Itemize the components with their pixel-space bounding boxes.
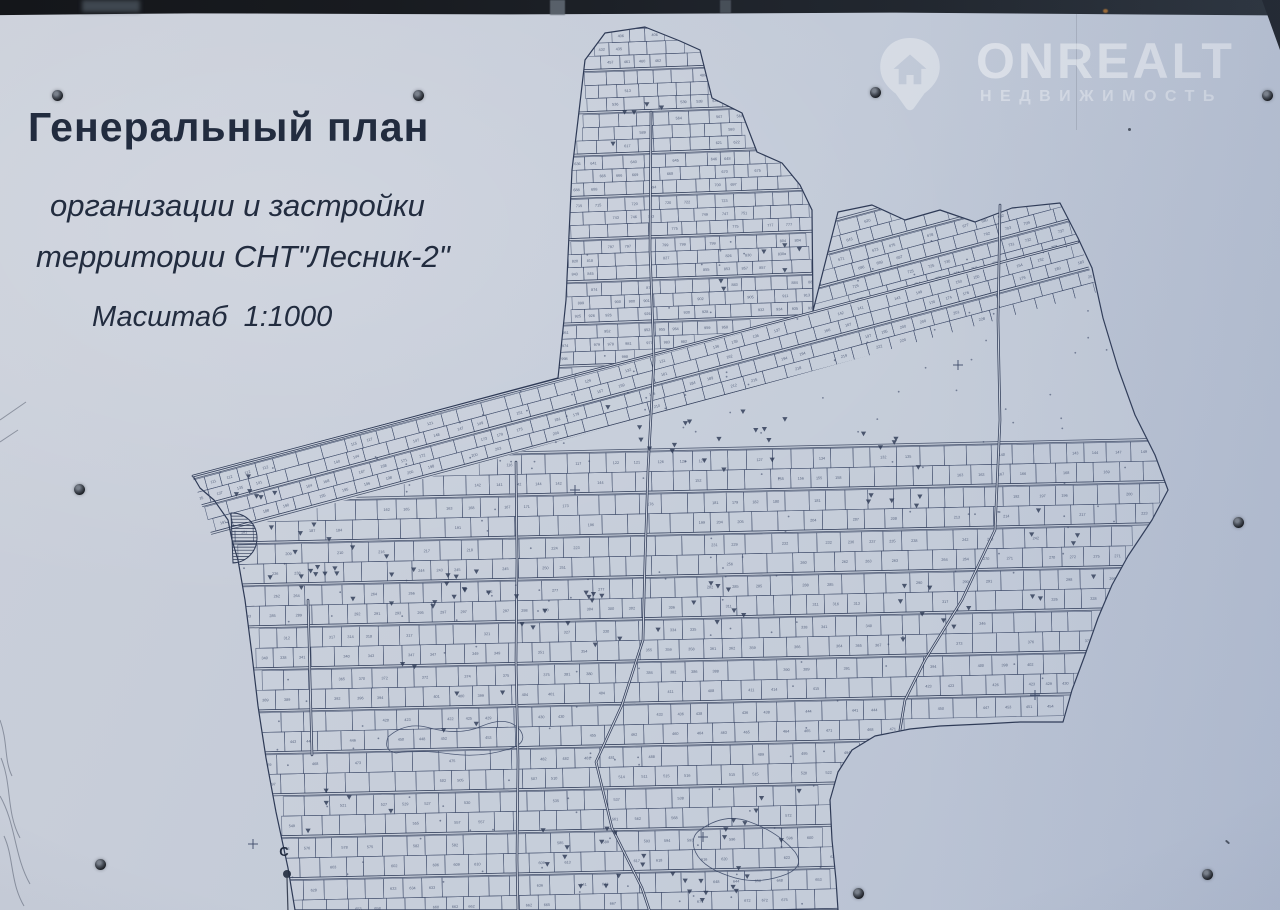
svg-text:349: 349 — [472, 652, 478, 656]
svg-text:270: 270 — [1049, 556, 1055, 560]
svg-text:271: 271 — [1007, 556, 1013, 560]
svg-text:152: 152 — [695, 479, 701, 483]
svg-text:645: 645 — [672, 159, 678, 163]
svg-text:235: 235 — [889, 539, 895, 543]
signboard-photo: Генеральный план организации и застройки… — [0, 0, 1280, 910]
svg-text:316: 316 — [833, 602, 839, 606]
svg-text:311: 311 — [812, 603, 818, 607]
svg-text:720: 720 — [631, 202, 637, 206]
svg-text:452: 452 — [441, 737, 447, 741]
svg-text:557: 557 — [478, 820, 484, 824]
svg-text:116: 116 — [506, 463, 512, 467]
svg-text:214: 214 — [1003, 514, 1009, 518]
svg-text:406: 406 — [618, 34, 624, 38]
svg-text:979: 979 — [594, 343, 600, 347]
svg-text:505: 505 — [457, 778, 463, 782]
svg-text:555: 555 — [413, 822, 419, 826]
svg-text:341: 341 — [299, 655, 305, 659]
svg-text:260: 260 — [800, 561, 806, 565]
svg-text:291: 291 — [986, 579, 992, 583]
svg-text:507: 507 — [531, 777, 537, 781]
svg-text:468: 468 — [312, 762, 318, 766]
svg-text:900: 900 — [629, 299, 635, 303]
svg-text:156: 156 — [798, 477, 804, 481]
svg-text:662: 662 — [526, 903, 532, 907]
svg-text:450: 450 — [398, 738, 404, 742]
svg-text:411: 411 — [667, 690, 673, 694]
svg-text:515: 515 — [729, 773, 735, 777]
svg-text:667: 667 — [610, 902, 616, 906]
svg-text:843: 843 — [571, 272, 577, 276]
svg-text:432: 432 — [599, 48, 605, 52]
svg-text:199: 199 — [699, 521, 705, 525]
svg-text:641: 641 — [590, 161, 596, 165]
svg-text:675: 675 — [754, 169, 760, 173]
svg-text:482: 482 — [540, 757, 546, 761]
svg-text:845: 845 — [587, 272, 593, 276]
svg-text:132: 132 — [880, 455, 886, 459]
svg-text:318: 318 — [366, 635, 372, 639]
svg-text:515: 515 — [752, 772, 758, 776]
svg-text:482: 482 — [562, 757, 568, 761]
svg-text:334: 334 — [670, 628, 676, 632]
svg-text:122: 122 — [613, 461, 619, 465]
svg-text:804: 804 — [795, 239, 801, 243]
svg-text:926: 926 — [605, 313, 611, 317]
screw-head — [74, 484, 85, 495]
svg-text:610: 610 — [474, 862, 480, 866]
svg-text:830: 830 — [778, 252, 784, 256]
svg-text:366: 366 — [794, 645, 800, 649]
svg-text:402: 402 — [1027, 663, 1033, 667]
svg-text:454: 454 — [1047, 705, 1053, 709]
svg-text:952: 952 — [604, 329, 610, 333]
svg-text:799: 799 — [662, 243, 668, 247]
svg-text:295: 295 — [417, 611, 423, 615]
svg-text:925: 925 — [575, 314, 581, 318]
svg-text:340: 340 — [261, 656, 267, 660]
svg-text:149: 149 — [1141, 450, 1147, 454]
svg-text:436: 436 — [678, 712, 684, 716]
svg-text:401: 401 — [548, 692, 554, 696]
svg-text:582: 582 — [413, 844, 419, 848]
svg-text:700: 700 — [714, 183, 720, 187]
svg-text:251: 251 — [559, 566, 565, 570]
svg-text:648: 648 — [713, 880, 719, 884]
svg-text:365: 365 — [856, 644, 862, 648]
svg-text:423: 423 — [948, 684, 954, 688]
svg-text:926: 926 — [589, 314, 595, 318]
svg-text:982: 982 — [681, 340, 687, 344]
svg-text:298: 298 — [1066, 578, 1072, 582]
svg-text:935: 935 — [792, 307, 798, 311]
svg-text:453: 453 — [1005, 705, 1011, 709]
svg-text:998: 998 — [561, 357, 567, 361]
svg-text:256: 256 — [727, 562, 733, 566]
svg-text:636: 636 — [574, 162, 580, 166]
svg-text:317: 317 — [329, 635, 335, 639]
svg-text:600: 600 — [807, 836, 813, 840]
svg-text:613: 613 — [564, 860, 570, 864]
svg-text:384: 384 — [646, 671, 652, 675]
svg-text:142: 142 — [555, 482, 561, 486]
svg-text:666: 666 — [616, 174, 622, 178]
svg-text:155: 155 — [816, 476, 822, 480]
svg-text:204: 204 — [810, 518, 816, 522]
svg-text:952: 952 — [644, 328, 650, 332]
svg-text:216: 216 — [378, 550, 384, 554]
svg-text:978: 978 — [608, 342, 614, 346]
svg-text:977: 977 — [646, 341, 652, 345]
svg-text:981: 981 — [625, 342, 631, 346]
svg-text:538: 538 — [696, 99, 702, 103]
svg-text:335: 335 — [690, 628, 696, 632]
svg-text:181: 181 — [241, 530, 247, 534]
svg-text:372: 372 — [381, 676, 387, 680]
svg-text:460: 460 — [672, 732, 678, 736]
svg-text:340: 340 — [343, 655, 349, 659]
svg-text:561: 561 — [612, 817, 618, 821]
svg-text:461: 461 — [624, 60, 630, 64]
svg-text:208: 208 — [891, 517, 897, 521]
svg-text:888: 888 — [808, 280, 814, 284]
svg-text:346: 346 — [979, 622, 985, 626]
svg-text:380: 380 — [586, 672, 592, 676]
svg-text:292: 292 — [354, 612, 360, 616]
svg-text:928: 928 — [702, 310, 708, 314]
svg-text:593: 593 — [687, 838, 693, 842]
svg-text:515: 515 — [663, 774, 669, 778]
svg-text:443: 443 — [290, 740, 296, 744]
svg-text:471: 471 — [826, 729, 832, 733]
svg-text:389: 389 — [262, 698, 268, 702]
svg-text:394: 394 — [377, 696, 383, 700]
svg-text:289: 289 — [296, 613, 302, 617]
svg-text:723: 723 — [721, 199, 727, 203]
svg-text:338: 338 — [801, 625, 807, 629]
svg-text:430: 430 — [558, 715, 564, 719]
svg-text:535: 535 — [553, 799, 559, 803]
svg-text:648: 648 — [777, 879, 783, 883]
svg-text:291: 291 — [374, 612, 380, 616]
svg-text:171: 171 — [524, 505, 530, 509]
svg-text:602: 602 — [391, 864, 397, 868]
svg-text:464: 464 — [697, 731, 703, 735]
svg-text:351: 351 — [538, 650, 544, 654]
svg-text:382: 382 — [670, 670, 676, 674]
svg-text:347: 347 — [430, 653, 436, 657]
svg-text:285: 285 — [827, 583, 833, 587]
svg-text:958: 958 — [722, 325, 728, 329]
svg-text:262: 262 — [842, 560, 848, 564]
svg-text:633: 633 — [390, 887, 396, 891]
svg-text:527: 527 — [424, 802, 430, 806]
svg-text:282: 282 — [707, 585, 713, 589]
svg-text:373: 373 — [956, 642, 962, 646]
svg-text:232: 232 — [825, 541, 831, 545]
svg-text:223: 223 — [573, 546, 579, 550]
svg-text:932: 932 — [758, 308, 764, 312]
svg-text:338: 338 — [280, 656, 286, 660]
svg-text:636: 636 — [537, 884, 543, 888]
svg-text:665: 665 — [599, 174, 605, 178]
svg-text:374: 374 — [464, 675, 470, 679]
svg-text:264: 264 — [941, 558, 947, 562]
svg-text:446: 446 — [350, 739, 356, 743]
svg-text:617: 617 — [634, 859, 640, 863]
svg-text:179: 179 — [732, 501, 738, 505]
svg-text:465: 465 — [804, 729, 810, 733]
svg-text:423: 423 — [925, 684, 931, 688]
svg-text:818: 818 — [587, 259, 593, 263]
svg-text:621: 621 — [716, 141, 722, 145]
svg-text:197: 197 — [1039, 494, 1045, 498]
svg-text:264: 264 — [963, 557, 969, 561]
svg-text:722: 722 — [684, 200, 690, 204]
svg-text:250: 250 — [542, 566, 548, 570]
svg-text:857: 857 — [742, 266, 748, 270]
svg-text:381: 381 — [564, 673, 570, 677]
svg-text:205: 205 — [737, 520, 743, 524]
svg-text:913: 913 — [804, 293, 810, 297]
svg-text:181: 181 — [712, 501, 718, 505]
svg-text:905: 905 — [747, 295, 753, 299]
svg-text:901: 901 — [643, 299, 649, 303]
svg-text:557: 557 — [454, 821, 460, 825]
svg-text:596: 596 — [729, 837, 735, 841]
svg-text:244: 244 — [418, 569, 424, 573]
svg-text:306: 306 — [669, 606, 675, 610]
svg-text:236: 236 — [272, 572, 278, 576]
svg-text:330: 330 — [603, 630, 609, 634]
svg-text:435: 435 — [616, 47, 622, 51]
svg-text:218: 218 — [467, 548, 473, 552]
svg-text:468: 468 — [867, 728, 873, 732]
svg-text:593: 593 — [728, 127, 734, 131]
svg-text:464: 464 — [783, 730, 789, 734]
svg-text:400: 400 — [458, 694, 464, 698]
svg-text:297: 297 — [460, 610, 466, 614]
svg-text:720: 720 — [665, 201, 671, 205]
svg-text:448: 448 — [419, 737, 425, 741]
svg-text:283: 283 — [245, 614, 251, 618]
svg-text:340: 340 — [866, 624, 872, 628]
svg-text:204: 204 — [716, 520, 722, 524]
svg-text:564: 564 — [676, 116, 682, 120]
svg-text:288: 288 — [802, 583, 808, 587]
svg-text:144: 144 — [535, 482, 541, 486]
svg-text:354: 354 — [581, 650, 587, 654]
svg-text:117: 117 — [575, 462, 581, 466]
svg-text:609: 609 — [538, 861, 544, 865]
svg-text:622: 622 — [830, 855, 836, 859]
svg-text:237: 237 — [869, 540, 875, 544]
svg-text:277: 277 — [552, 589, 558, 593]
svg-text:471: 471 — [890, 727, 896, 731]
svg-text:634: 634 — [409, 886, 415, 890]
svg-text:775: 775 — [732, 225, 738, 229]
svg-text:675: 675 — [781, 898, 787, 902]
svg-text:511: 511 — [641, 775, 647, 779]
svg-text:444: 444 — [871, 708, 877, 712]
svg-text:650: 650 — [755, 879, 761, 883]
svg-text:596: 596 — [786, 836, 792, 840]
svg-text:173: 173 — [562, 504, 568, 508]
svg-text:617: 617 — [624, 144, 630, 148]
svg-text:364: 364 — [836, 644, 842, 648]
svg-text:441: 441 — [852, 709, 858, 713]
svg-text:144: 144 — [1092, 451, 1098, 455]
svg-text:245: 245 — [454, 568, 460, 572]
svg-text:263: 263 — [892, 559, 898, 563]
svg-text:361: 361 — [710, 647, 716, 651]
north-marker-label: С — [279, 844, 289, 859]
svg-text:799: 799 — [709, 241, 715, 245]
svg-text:196: 196 — [1061, 494, 1067, 498]
svg-text:955: 955 — [659, 328, 665, 332]
svg-text:884: 884 — [791, 281, 797, 285]
svg-text:264: 264 — [293, 594, 299, 598]
svg-text:530: 530 — [464, 801, 470, 805]
svg-text:168: 168 — [468, 506, 474, 510]
svg-text:142: 142 — [474, 483, 480, 487]
svg-text:163: 163 — [957, 473, 963, 477]
svg-text:121: 121 — [634, 461, 640, 465]
svg-text:589: 589 — [639, 131, 645, 135]
svg-text:495: 495 — [801, 752, 807, 756]
svg-text:488: 488 — [648, 755, 654, 759]
svg-text:648: 648 — [724, 157, 730, 161]
svg-text:633: 633 — [429, 886, 435, 890]
svg-text:238: 238 — [911, 539, 917, 543]
svg-text:644: 644 — [733, 880, 739, 884]
svg-text:743: 743 — [613, 216, 619, 220]
svg-text:317: 317 — [942, 600, 948, 604]
svg-text:165: 165 — [403, 507, 409, 511]
svg-text:974: 974 — [562, 344, 568, 348]
svg-text:358: 358 — [688, 647, 694, 651]
svg-text:277: 277 — [598, 588, 604, 592]
svg-text:192: 192 — [1013, 495, 1019, 499]
svg-text:321: 321 — [484, 632, 490, 636]
svg-text:516: 516 — [684, 774, 690, 778]
svg-text:398: 398 — [1001, 663, 1007, 667]
svg-text:451: 451 — [1026, 705, 1032, 709]
svg-text:538: 538 — [677, 796, 683, 800]
svg-text:328: 328 — [1090, 597, 1096, 601]
svg-text:568: 568 — [737, 114, 743, 118]
svg-text:855: 855 — [703, 268, 709, 272]
svg-text:242: 242 — [1033, 536, 1039, 540]
svg-text:272: 272 — [1070, 555, 1076, 559]
screw-head — [1202, 869, 1213, 880]
svg-text:242: 242 — [962, 538, 968, 542]
svg-text:163: 163 — [446, 507, 452, 511]
svg-text:400: 400 — [978, 664, 984, 668]
svg-text:429: 429 — [1046, 682, 1052, 686]
svg-text:423: 423 — [1029, 682, 1035, 686]
svg-text:375: 375 — [543, 673, 549, 677]
svg-text:902: 902 — [697, 297, 703, 301]
svg-text:347: 347 — [408, 653, 414, 657]
svg-text:668: 668 — [667, 172, 673, 176]
svg-text:930: 930 — [683, 311, 689, 315]
svg-text:688: 688 — [591, 187, 597, 191]
svg-text:420: 420 — [383, 718, 389, 722]
svg-text:262: 262 — [274, 594, 280, 598]
svg-text:297: 297 — [440, 610, 446, 614]
svg-text:408: 408 — [708, 689, 714, 693]
svg-text:311: 311 — [726, 604, 732, 608]
svg-text:162: 162 — [383, 508, 389, 512]
svg-text:481: 481 — [584, 756, 590, 760]
svg-text:827: 827 — [663, 256, 669, 260]
svg-text:399: 399 — [478, 694, 484, 698]
screw-head — [1262, 90, 1273, 101]
svg-text:883: 883 — [731, 283, 737, 287]
svg-text:327: 327 — [564, 630, 570, 634]
svg-text:830: 830 — [745, 253, 751, 257]
svg-text:462: 462 — [655, 59, 661, 63]
svg-text:662: 662 — [468, 905, 474, 909]
screw-head — [870, 87, 881, 98]
svg-text:549: 549 — [289, 824, 295, 828]
svg-text:213: 213 — [954, 515, 960, 519]
svg-text:245: 245 — [502, 567, 508, 571]
svg-text:375: 375 — [503, 674, 509, 678]
svg-text:622: 622 — [733, 140, 739, 144]
svg-text:874: 874 — [591, 288, 597, 292]
svg-text:304: 304 — [587, 607, 593, 611]
svg-text:224: 224 — [551, 546, 557, 550]
svg-text:567: 567 — [716, 115, 722, 119]
svg-text:210: 210 — [337, 551, 343, 555]
svg-text:217: 217 — [1079, 513, 1085, 517]
svg-text:575: 575 — [367, 845, 373, 849]
svg-text:899: 899 — [578, 301, 584, 305]
site-plan-map: 4064064324354574614604624895135365395385… — [0, 0, 1280, 910]
svg-text:628: 628 — [311, 888, 317, 892]
svg-text:658: 658 — [374, 907, 380, 910]
svg-text:359: 359 — [665, 648, 671, 652]
svg-text:462: 462 — [631, 733, 637, 737]
svg-text:207: 207 — [853, 518, 859, 522]
svg-text:163: 163 — [978, 473, 984, 477]
svg-text:660: 660 — [433, 905, 439, 909]
svg-text:436: 436 — [742, 711, 748, 715]
svg-text:438: 438 — [763, 710, 769, 714]
svg-text:457: 457 — [607, 60, 613, 64]
screw-head — [95, 859, 106, 870]
svg-text:184: 184 — [336, 528, 342, 532]
svg-text:672: 672 — [744, 899, 750, 903]
svg-text:469: 469 — [265, 763, 271, 767]
svg-text:243: 243 — [436, 568, 442, 572]
svg-text:751: 751 — [741, 211, 747, 215]
svg-text:285: 285 — [269, 614, 275, 618]
svg-text:578: 578 — [341, 846, 347, 850]
svg-text:359: 359 — [749, 646, 755, 650]
svg-text:167: 167 — [504, 505, 510, 509]
svg-text:236: 236 — [848, 540, 854, 544]
svg-text:900: 900 — [615, 300, 621, 304]
svg-text:135: 135 — [197, 496, 204, 502]
screw-head — [853, 888, 864, 899]
svg-text:568: 568 — [671, 816, 677, 820]
svg-text:529: 529 — [402, 802, 408, 806]
svg-text:302: 302 — [629, 606, 635, 610]
svg-text:777: 777 — [786, 223, 792, 227]
